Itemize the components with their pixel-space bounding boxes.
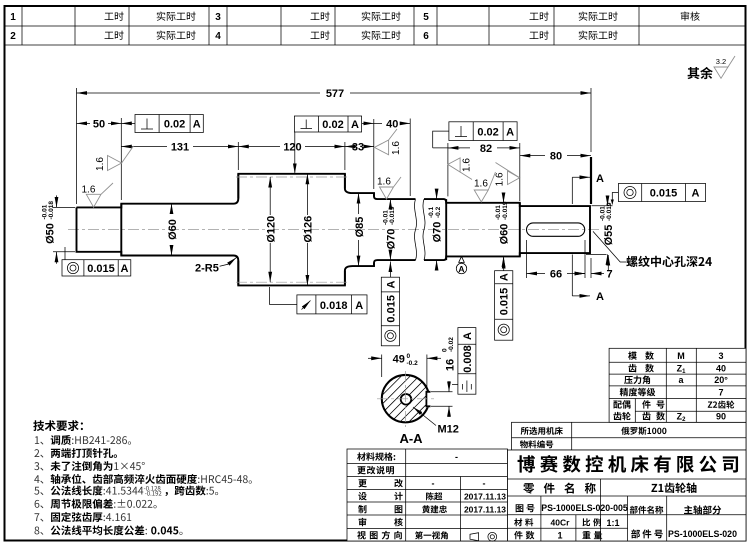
svg-text:A: A (596, 291, 604, 303)
svg-text:3: 3 (718, 351, 723, 361)
svg-text:2017.11.13: 2017.11.13 (464, 492, 506, 502)
svg-text:40Cr: 40Cr (551, 518, 571, 528)
svg-text:0.015: 0.015 (499, 288, 511, 316)
svg-text:2017.11.13: 2017.11.13 (464, 505, 506, 515)
svg-text:Ø60: Ø60 (167, 219, 179, 240)
svg-text:577: 577 (326, 88, 344, 100)
svg-text:5: 5 (423, 12, 429, 23)
svg-text:6: 6 (423, 31, 429, 42)
svg-text:M: M (677, 351, 685, 361)
svg-text:0.02: 0.02 (322, 119, 343, 131)
svg-text:80: 80 (550, 151, 562, 163)
svg-text:-: - (483, 479, 486, 489)
svg-text:-: - (432, 479, 435, 489)
svg-text:40: 40 (716, 364, 726, 374)
svg-text:120: 120 (283, 142, 301, 154)
svg-text:1:1: 1:1 (606, 518, 619, 528)
svg-text:A: A (596, 173, 604, 185)
svg-text:2: 2 (10, 31, 16, 42)
svg-text:Ø50: Ø50 (45, 223, 57, 244)
svg-text:0.018: 0.018 (320, 300, 348, 312)
svg-text:A: A (351, 119, 359, 131)
svg-text:1.6: 1.6 (474, 179, 488, 190)
svg-text:0.015: 0.015 (385, 295, 397, 323)
svg-text:7: 7 (718, 388, 723, 398)
svg-text:50: 50 (93, 119, 105, 131)
svg-text:66: 66 (550, 269, 562, 281)
svg-text:A: A (692, 188, 700, 200)
svg-text:-0.018: -0.018 (48, 201, 55, 220)
svg-text:A: A (355, 300, 363, 312)
svg-text:7: 7 (606, 269, 612, 281)
svg-text:3: 3 (215, 12, 221, 23)
svg-text:A-A: A-A (399, 431, 423, 446)
svg-text:Ø120: Ø120 (266, 216, 278, 243)
svg-text:1.6: 1.6 (462, 158, 473, 172)
svg-text:-0.2: -0.2 (435, 206, 442, 218)
svg-text:20°: 20° (714, 375, 728, 385)
svg-text:16: 16 (445, 359, 457, 371)
svg-text:0.008: 0.008 (462, 345, 474, 373)
svg-text:A: A (458, 264, 464, 274)
svg-text:1.6: 1.6 (495, 172, 506, 186)
svg-text:1.6: 1.6 (391, 141, 402, 155)
svg-text:Ø85: Ø85 (354, 217, 366, 238)
svg-text:33: 33 (352, 142, 364, 154)
svg-text:-0.019: -0.019 (389, 206, 396, 225)
svg-text:90: 90 (716, 412, 726, 422)
svg-text:A: A (462, 332, 474, 340)
svg-text:Ø70: Ø70 (431, 222, 443, 243)
svg-text:0.015: 0.015 (87, 263, 115, 275)
svg-text:PS-1000ELS-020: PS-1000ELS-020 (668, 529, 737, 539)
svg-text:0.02: 0.02 (477, 127, 498, 139)
svg-text:M12: M12 (438, 424, 459, 436)
svg-text:0.02: 0.02 (164, 119, 185, 131)
svg-text:A: A (193, 119, 201, 131)
svg-text:4: 4 (215, 31, 221, 42)
svg-text:-0.2: -0.2 (407, 360, 419, 367)
svg-text:-0.019: -0.019 (502, 201, 509, 220)
svg-text:Ø55: Ø55 (603, 225, 615, 246)
svg-text:PS-1000ELS-020-005: PS-1000ELS-020-005 (541, 503, 628, 513)
svg-text:1: 1 (557, 531, 562, 541)
svg-text:40: 40 (386, 119, 398, 131)
svg-text:1.6: 1.6 (377, 177, 391, 188)
svg-text:0.015: 0.015 (650, 188, 678, 200)
svg-text:3.2: 3.2 (716, 57, 726, 66)
svg-text:Ø70: Ø70 (386, 229, 398, 250)
svg-text:A: A (499, 273, 511, 281)
svg-text:Ø60: Ø60 (498, 224, 510, 245)
svg-text:1: 1 (10, 12, 16, 23)
svg-text:49: 49 (393, 354, 405, 366)
svg-text:A: A (506, 127, 514, 139)
svg-text:1.6: 1.6 (82, 185, 96, 196)
svg-text:82: 82 (480, 143, 492, 155)
svg-text:131: 131 (171, 142, 189, 154)
svg-text:-: - (455, 452, 458, 462)
svg-text:A: A (385, 280, 397, 288)
svg-text:1.6: 1.6 (95, 157, 106, 171)
svg-text:A: A (121, 263, 129, 275)
svg-text:2-R5: 2-R5 (195, 263, 219, 275)
svg-text:-0.02: -0.02 (448, 337, 455, 352)
svg-text:-0.019: -0.019 (606, 202, 613, 221)
svg-text:Ø126: Ø126 (303, 216, 315, 243)
